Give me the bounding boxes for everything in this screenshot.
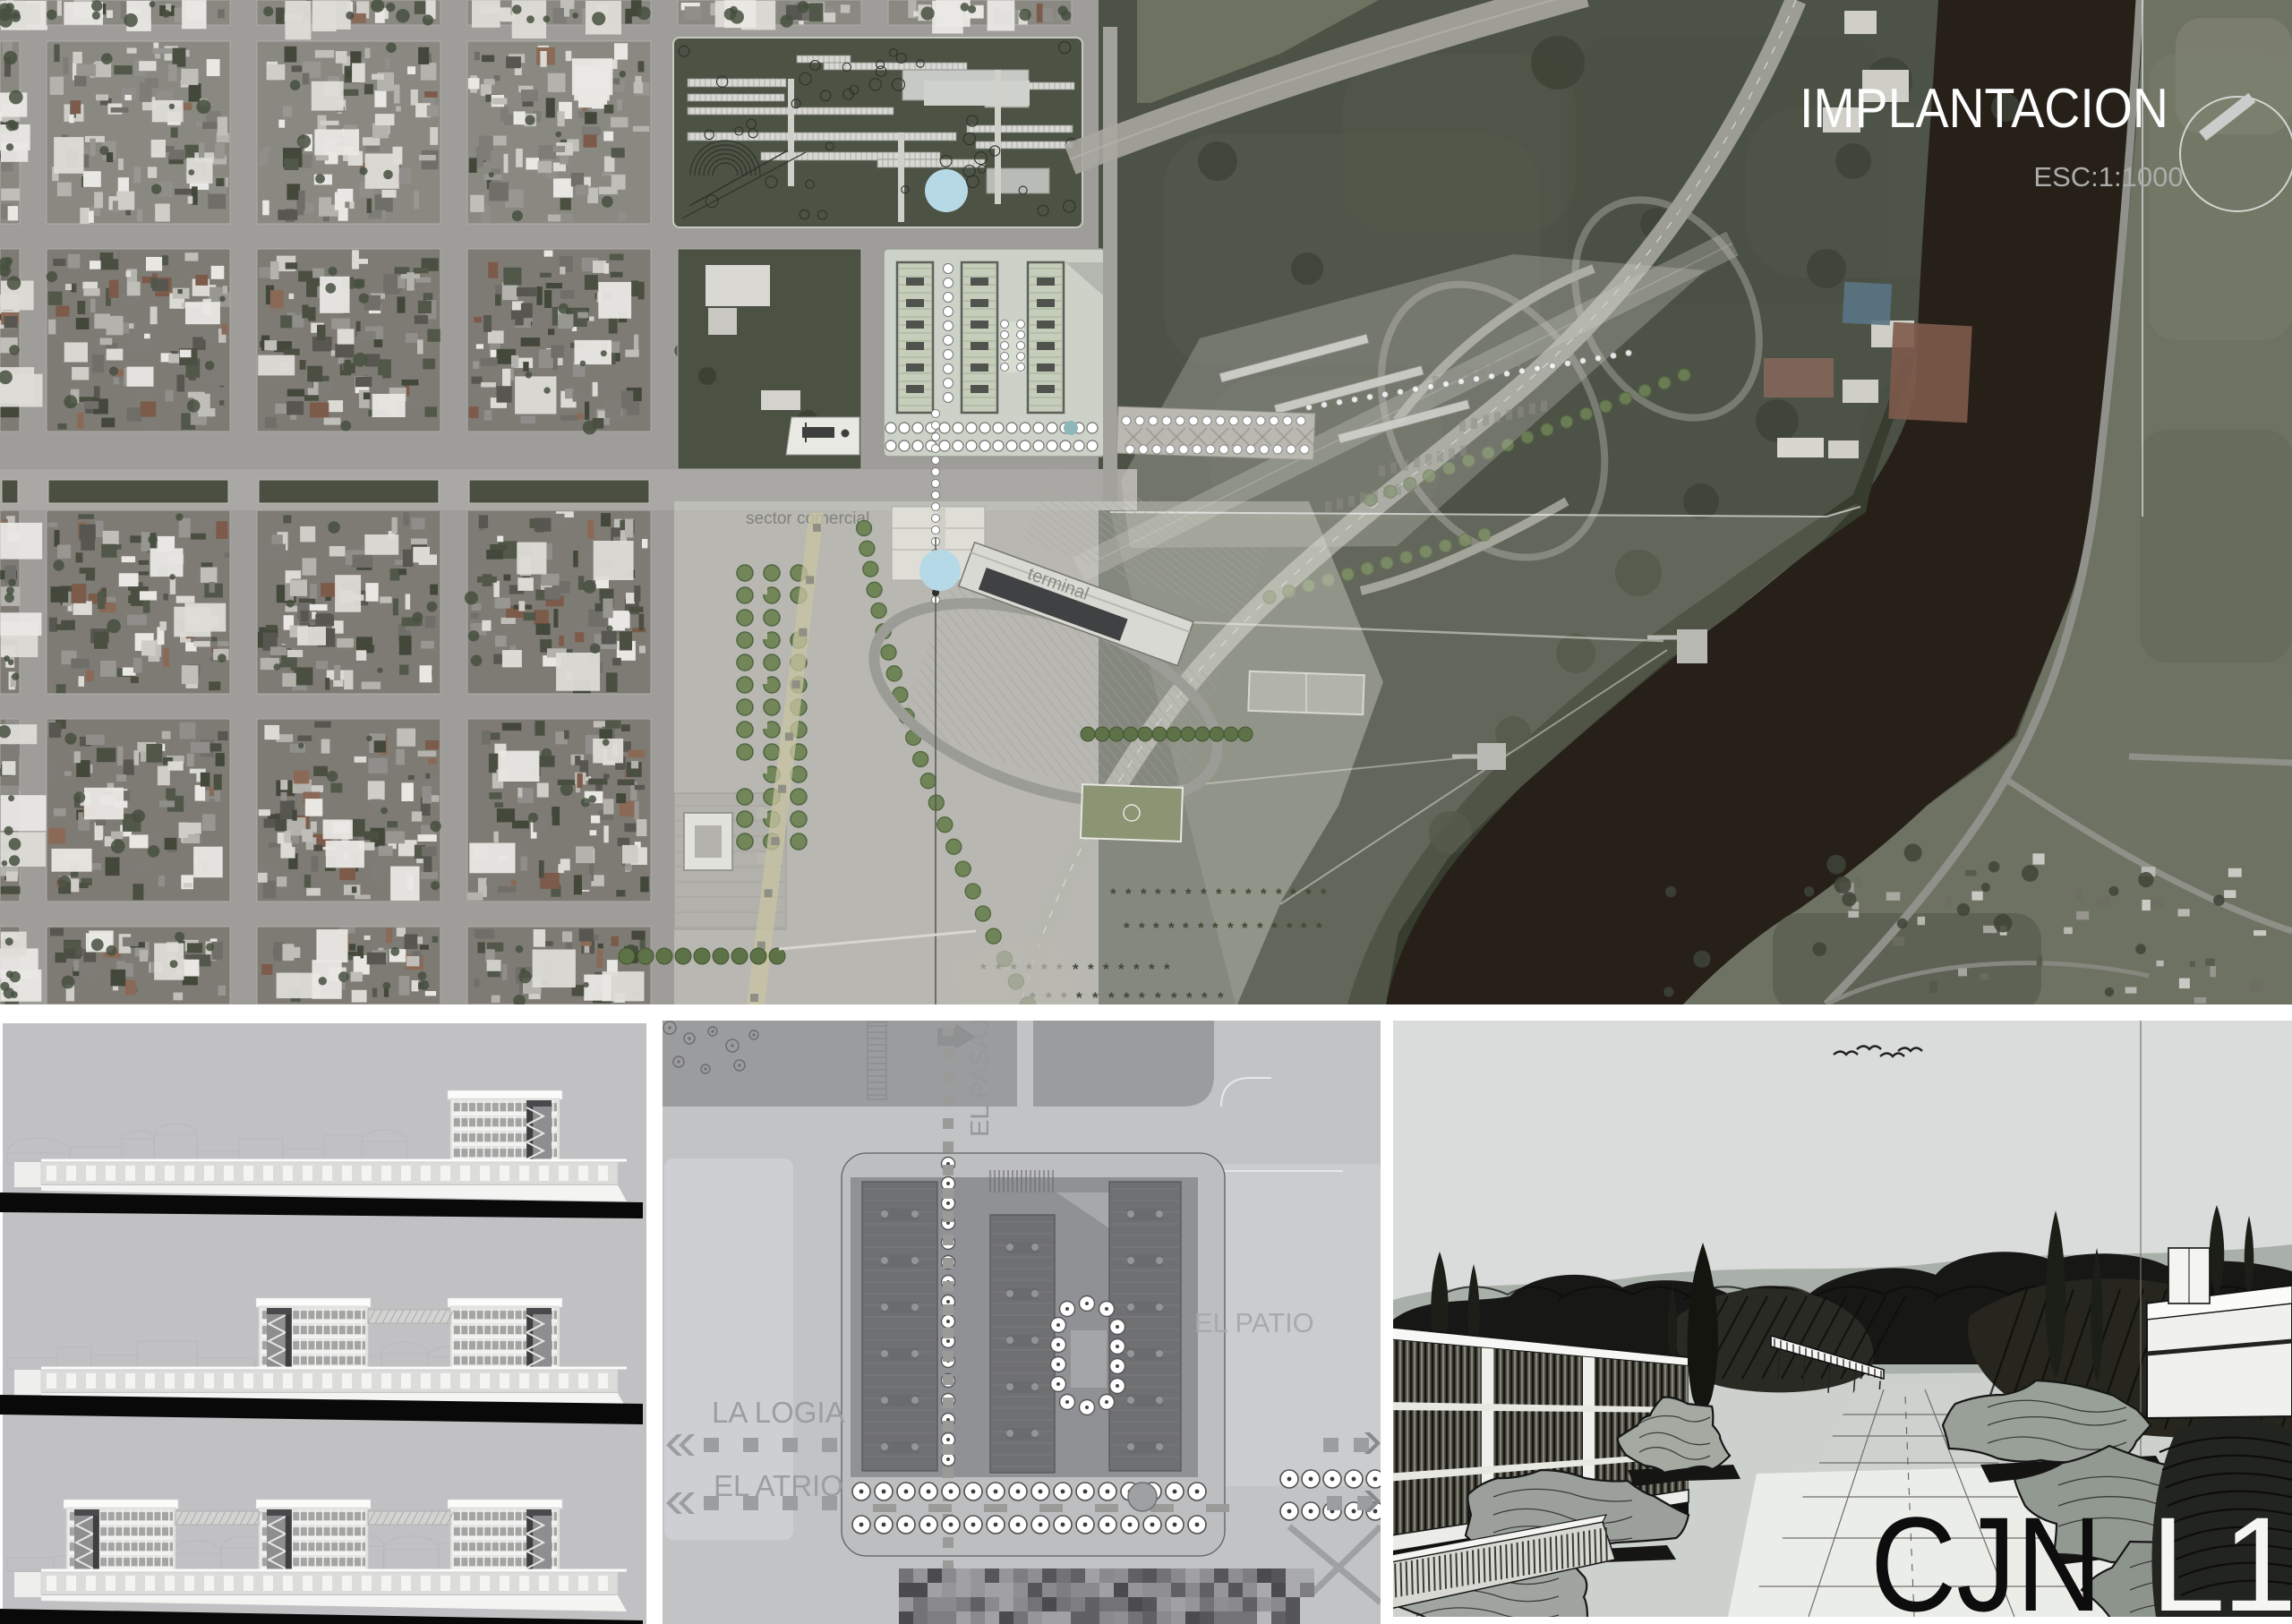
svg-text:*: *	[1073, 961, 1079, 978]
svg-text:*: *	[1261, 885, 1267, 902]
svg-text:*: *	[1321, 885, 1327, 902]
svg-text:*: *	[1301, 919, 1307, 936]
svg-text:*: *	[1153, 919, 1159, 936]
svg-text:IMPLANTACION: IMPLANTACION	[1800, 78, 2168, 140]
svg-text:*: *	[1230, 885, 1236, 902]
svg-text:*: *	[1171, 989, 1177, 1006]
svg-text:*: *	[1245, 885, 1252, 902]
svg-text:*: *	[1276, 885, 1282, 902]
svg-text:*: *	[1271, 919, 1278, 936]
svg-text:*: *	[1202, 989, 1208, 1006]
svg-text:EL PATIO: EL PATIO	[1194, 1307, 1314, 1338]
svg-text:*: *	[1290, 885, 1296, 902]
svg-text:*: *	[1183, 919, 1189, 936]
svg-text:*: *	[1125, 885, 1132, 902]
svg-text:*: *	[1316, 919, 1322, 936]
svg-text:*: *	[1124, 989, 1130, 1006]
svg-text:*: *	[1186, 989, 1193, 1006]
svg-text:*: *	[1227, 919, 1234, 936]
svg-text:*: *	[1198, 919, 1204, 936]
svg-text:*: *	[1168, 919, 1175, 936]
svg-text:CJN: CJN	[1870, 1489, 2102, 1624]
svg-text:*: *	[1092, 989, 1099, 1006]
svg-text:*: *	[1164, 961, 1170, 978]
svg-text:sector comercial: sector comercial	[746, 509, 869, 528]
svg-text:*: *	[1242, 919, 1248, 936]
svg-text:*: *	[1185, 885, 1192, 902]
svg-text:*: *	[1108, 989, 1115, 1006]
svg-text:*: *	[1257, 919, 1263, 936]
svg-text:*: *	[1305, 885, 1312, 902]
svg-text:L: L	[2151, 1489, 2225, 1624]
svg-text:*: *	[1218, 989, 1224, 1006]
svg-text:*: *	[1287, 919, 1293, 936]
svg-text:*: *	[1155, 885, 1161, 902]
svg-text:1: 1	[2222, 1489, 2292, 1624]
svg-text:*: *	[1124, 919, 1130, 936]
svg-text:EL PASAJE: EL PASAJE	[966, 1001, 995, 1137]
svg-text:*: *	[1149, 961, 1155, 978]
svg-text:*: *	[1139, 989, 1145, 1006]
svg-text:*: *	[1201, 885, 1207, 902]
svg-text:*: *	[1216, 885, 1222, 902]
svg-text:LA LOGIA: LA LOGIA	[712, 1396, 845, 1429]
svg-text:*: *	[1110, 885, 1116, 902]
svg-text:*: *	[1170, 885, 1176, 902]
svg-text:*: *	[1088, 961, 1094, 978]
svg-text:ESC:1:1000: ESC:1:1000	[2033, 161, 2183, 192]
svg-text:*: *	[1155, 989, 1161, 1006]
svg-text:*: *	[1133, 961, 1140, 978]
svg-text:*: *	[1103, 961, 1109, 978]
svg-text:*: *	[1212, 919, 1219, 936]
svg-text:*: *	[1141, 885, 1147, 902]
svg-text:*: *	[1139, 919, 1145, 936]
svg-text:*: *	[1118, 961, 1125, 978]
